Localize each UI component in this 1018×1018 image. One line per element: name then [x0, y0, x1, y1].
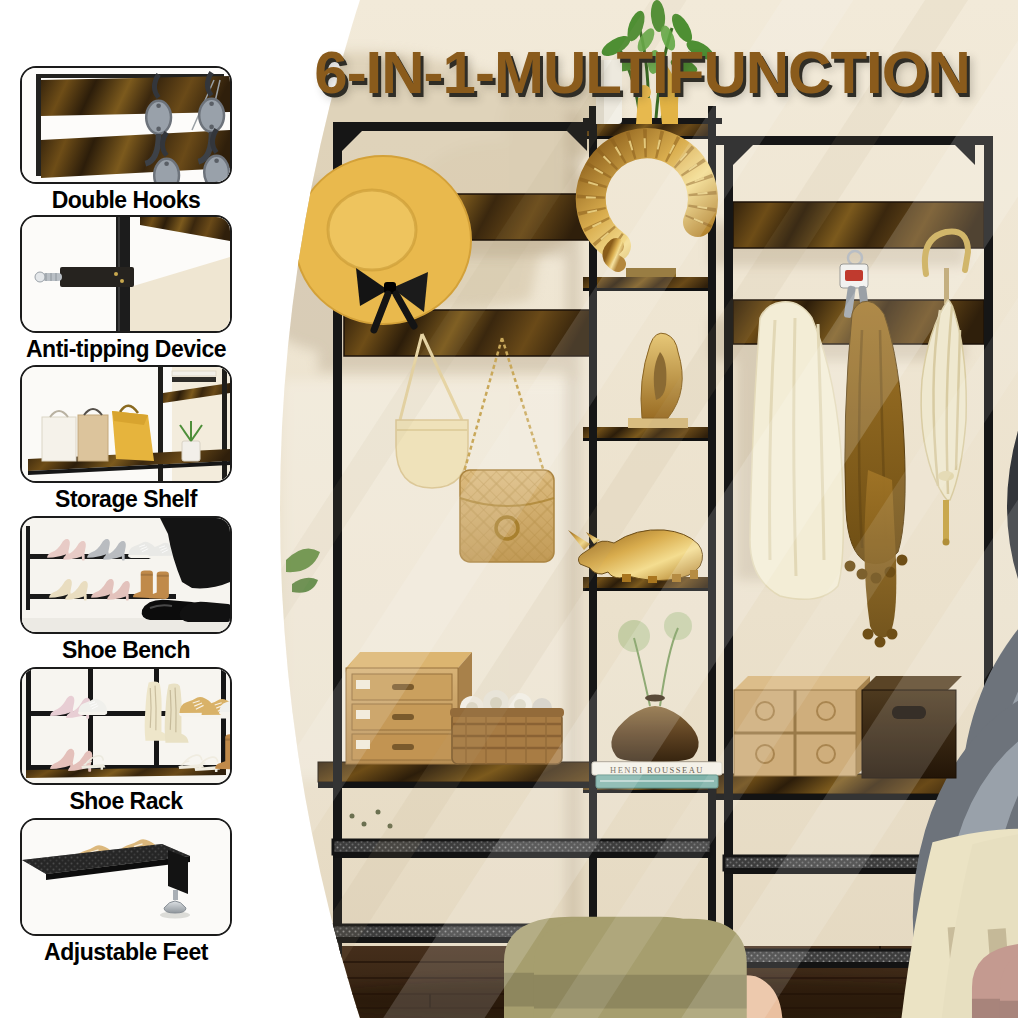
thumb-storage-shelf [20, 365, 232, 483]
books-stack: HENRI ROUSSEAU [592, 762, 722, 788]
feature-item-shoe-rack: Shoe Rack [0, 667, 252, 815]
product-image: HENRI ROUSSEAU [0, 0, 1018, 1018]
feature-item-double-hooks: Double Hooks [0, 66, 252, 214]
thumb-double-hooks [20, 66, 232, 184]
hook-board-right-top [733, 202, 984, 248]
feature-item-storage-shelf: Storage Shelf [0, 365, 252, 513]
thumb-adjustable-feet [20, 818, 232, 936]
feature-item-anti-tipping: Anti-tipping Device [0, 215, 252, 363]
feature-label: Double Hooks [0, 187, 252, 214]
thumb-shoe-rack [20, 667, 232, 785]
feature-label: Shoe Bench [0, 637, 252, 664]
feature-item-shoe-bench: Shoe Bench [0, 516, 252, 664]
wicker-basket [450, 690, 564, 764]
feature-label: Shoe Rack [0, 788, 252, 815]
main-title: 6-IN-1-MULTIFUNCTION [268, 38, 1016, 107]
storage-box [862, 676, 962, 778]
book-spine-title: HENRI ROUSSEAU [610, 765, 704, 775]
thumb-shoe-bench [20, 516, 232, 634]
thumb-anti-tipping [20, 215, 232, 333]
feature-label: Anti-tipping Device [0, 336, 252, 363]
cube-drawer-box [734, 676, 870, 776]
feature-label: Adjustable Feet [0, 939, 252, 966]
feature-item-adjustable-feet: Adjustable Feet [0, 818, 252, 966]
feature-label: Storage Shelf [0, 486, 252, 513]
feature-sidebar: Double Hooks Anti-tipping Device [0, 0, 252, 1018]
